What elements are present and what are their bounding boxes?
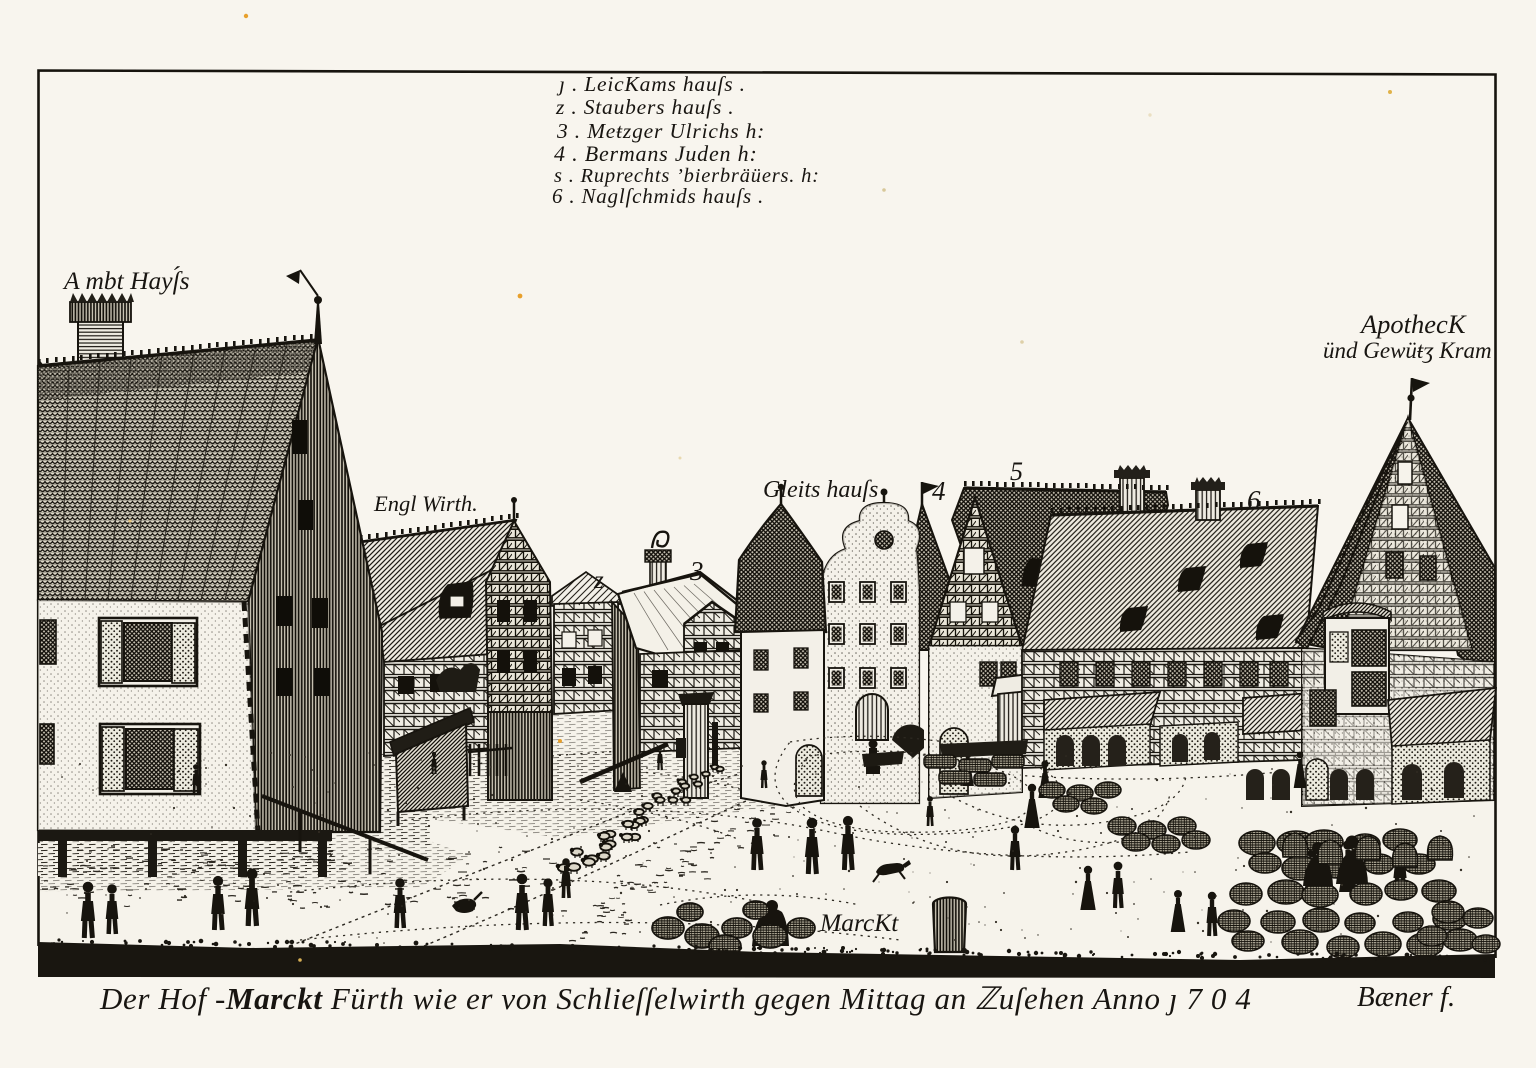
svg-text:Der Hof -Marckt Fürth wie er v: Der Hof -Marckt Fürth wie er von Schlieſ… <box>99 981 1251 1016</box>
svg-text:A mbt Hayſ́s: A mbt Hayſ́s <box>62 266 190 295</box>
svg-text:3: 3 <box>689 556 704 586</box>
svg-text:6: 6 <box>1247 485 1261 515</box>
svg-text:Gleits hauſs: Gleits hauſs <box>763 477 878 503</box>
svg-text:ApothecK: ApothecK <box>1359 309 1467 339</box>
svg-text:z . Staubers hauſs .: z . Staubers hauſs . <box>555 95 734 119</box>
svg-text:ünd Gewüŧʒ Kram: ünd Gewüŧʒ Kram <box>1323 338 1492 363</box>
svg-text:6 . Naglſchmids hauſs .: 6 . Naglſchmids hauſs . <box>552 184 764 208</box>
svg-text:Bæner f.: Bæner f. <box>1357 981 1455 1013</box>
svg-text:4: 4 <box>932 476 946 506</box>
svg-text:3 . Meŧzger Ulrichs h:: 3 . Meŧzger Ulrichs h: <box>556 119 765 143</box>
svg-text:z: z <box>593 567 604 594</box>
svg-text:5: 5 <box>1010 457 1023 486</box>
svg-text:MarcKt: MarcKt <box>819 908 899 937</box>
svg-text:4 . Bermans Juden h:: 4 . Bermans Juden h: <box>554 141 758 166</box>
svg-text:ȷ . LeicKams hauſs .: ȷ . LeicKams hauſs . <box>556 72 746 96</box>
svg-text:Engl Wirth.: Engl Wirth. <box>373 491 478 516</box>
